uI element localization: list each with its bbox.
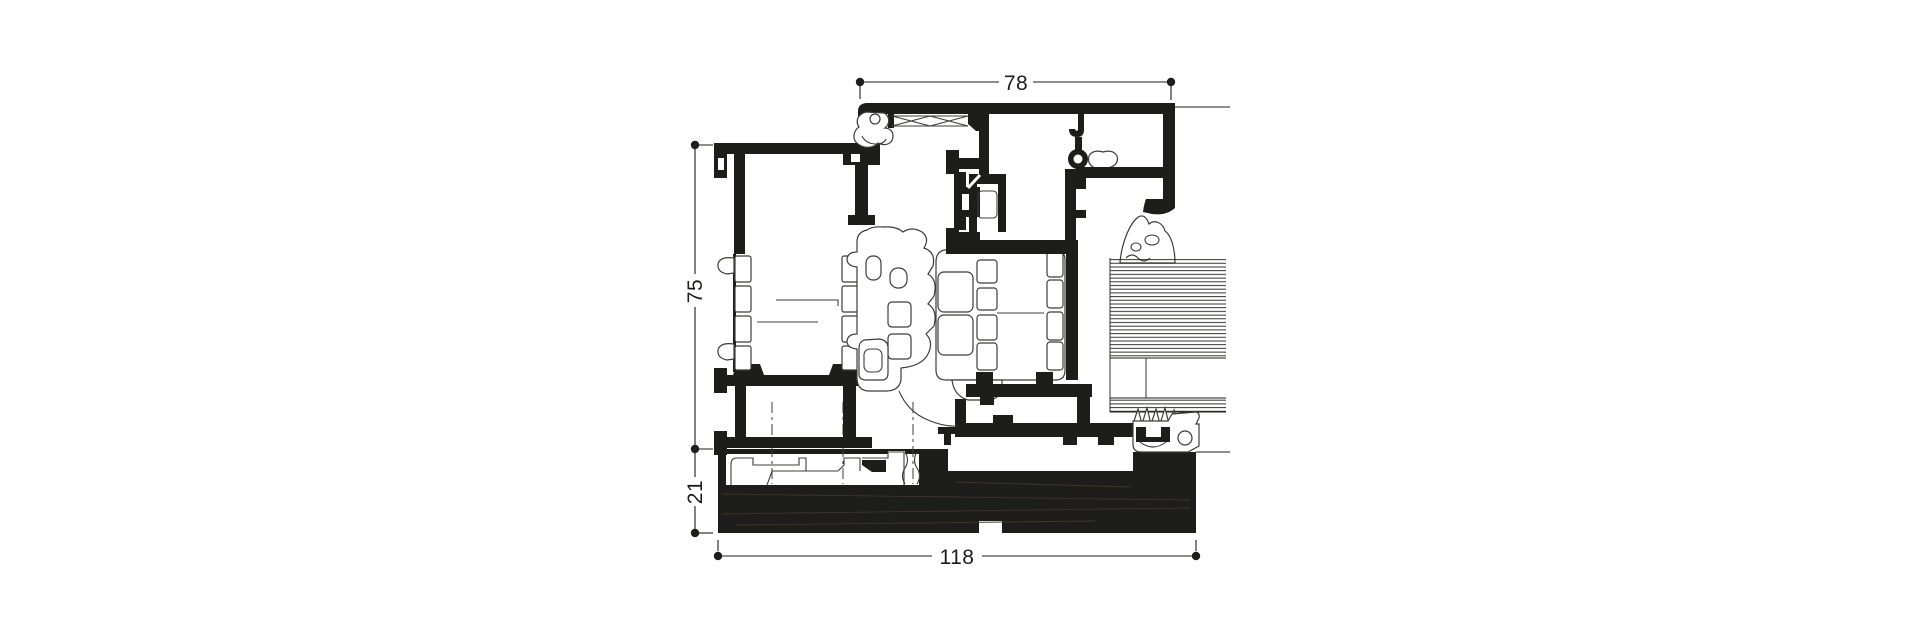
dimension-label-left-lower: 21 [684, 480, 707, 504]
center-gasket [859, 339, 888, 380]
drawing-canvas: 78 75 21 118 [0, 0, 1920, 640]
dimension-left-upper: 75 [684, 141, 713, 453]
glazing-seal-strip [888, 113, 984, 131]
sill-end-cap [1133, 408, 1199, 452]
sill-insert-profile [726, 451, 920, 485]
dimension-bottom: 118 [714, 540, 1200, 569]
wall-gasket [1089, 151, 1118, 169]
floor-buildup-hatch [1110, 258, 1226, 412]
floor-gasket [1120, 216, 1175, 263]
dimension-label-left-upper: 75 [684, 279, 707, 303]
drainage-rail [938, 393, 1133, 445]
dimension-label-bottom: 118 [940, 546, 975, 569]
dimension-label-top: 78 [1004, 72, 1028, 95]
dimension-left-lower: 21 [684, 453, 713, 537]
section-drawing: 78 75 21 118 [0, 0, 1920, 640]
thermal-break-inserts [718, 256, 858, 370]
dimension-top: 78 [856, 72, 1175, 100]
page: { "canvas": { "width": 1920, "height": 6… [0, 0, 1920, 640]
